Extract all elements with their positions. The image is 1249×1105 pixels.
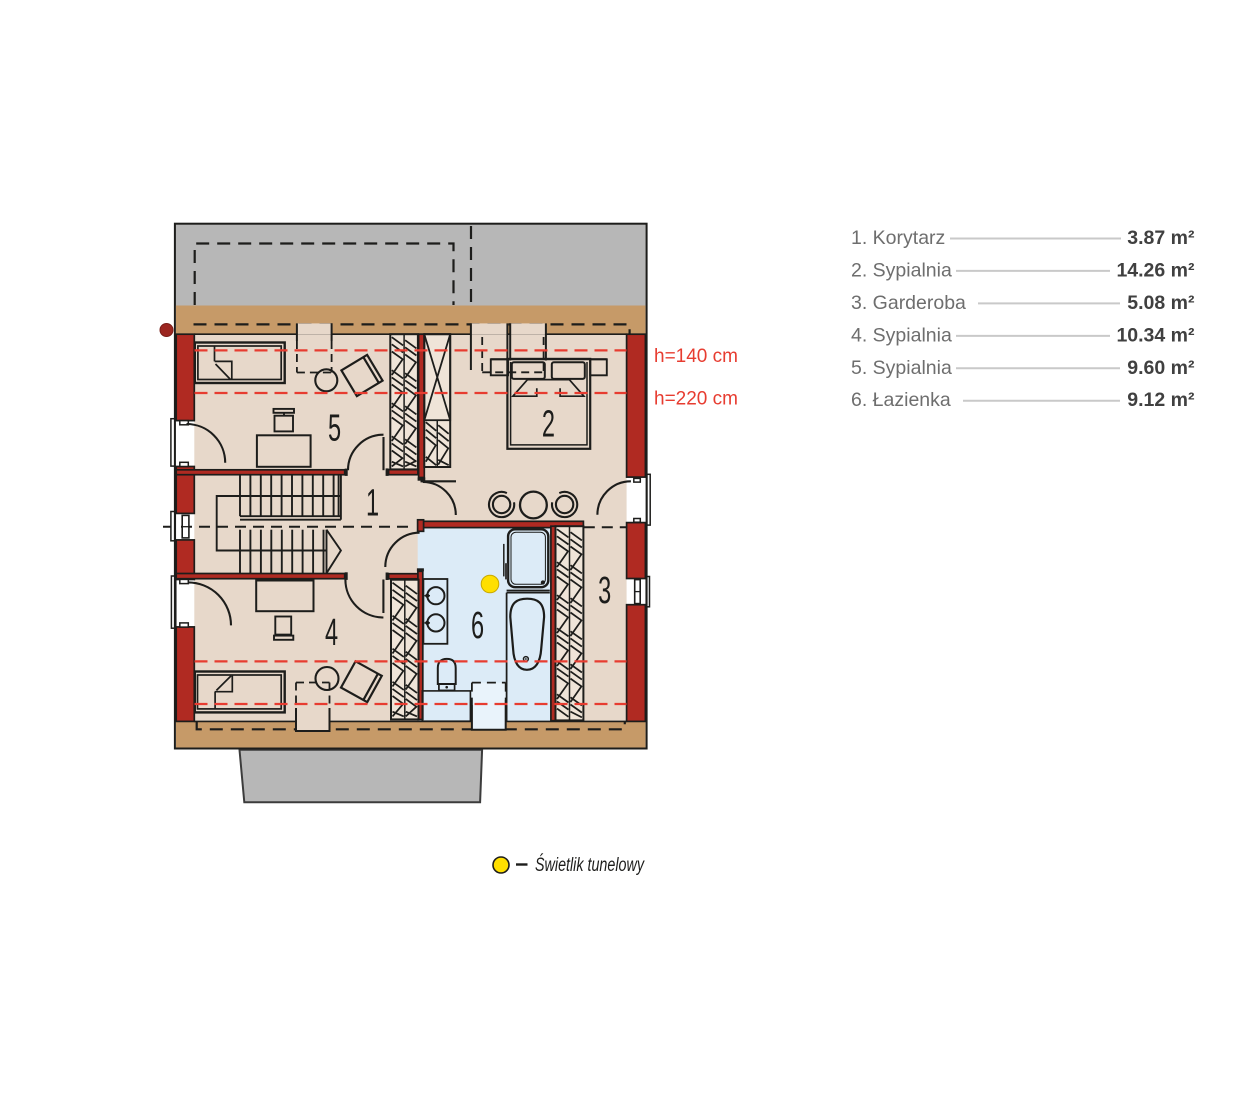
svg-text:14.26 m²: 14.26 m² (1116, 259, 1195, 281)
svg-text:9.12 m²: 9.12 m² (1127, 389, 1195, 411)
svg-text:1. Korytarz: 1. Korytarz (851, 227, 945, 249)
svg-text:10.34 m²: 10.34 m² (1116, 324, 1195, 346)
svg-text:6: 6 (471, 603, 484, 646)
svg-text:5.08 m²: 5.08 m² (1127, 292, 1195, 314)
svg-text:2. Sypialnia: 2. Sypialnia (851, 259, 952, 281)
svg-text:h=220 cm: h=220 cm (654, 389, 738, 410)
svg-text:3: 3 (598, 568, 611, 611)
svg-text:4: 4 (325, 610, 338, 653)
svg-text:Świetlik tunelowy: Świetlik tunelowy (535, 852, 645, 876)
svg-text:9.60 m²: 9.60 m² (1127, 357, 1195, 379)
svg-text:4. Sypialnia: 4. Sypialnia (851, 324, 952, 346)
svg-text:1: 1 (366, 481, 379, 524)
svg-text:6. Łazienka: 6. Łazienka (851, 389, 951, 411)
svg-text:5: 5 (328, 406, 341, 449)
svg-text:h=140 cm: h=140 cm (654, 346, 738, 367)
svg-text:5. Sypialnia: 5. Sypialnia (851, 357, 952, 379)
svg-text:2: 2 (542, 401, 555, 444)
svg-text:3.87 m²: 3.87 m² (1127, 227, 1195, 249)
svg-text:3. Garderoba: 3. Garderoba (851, 292, 966, 314)
